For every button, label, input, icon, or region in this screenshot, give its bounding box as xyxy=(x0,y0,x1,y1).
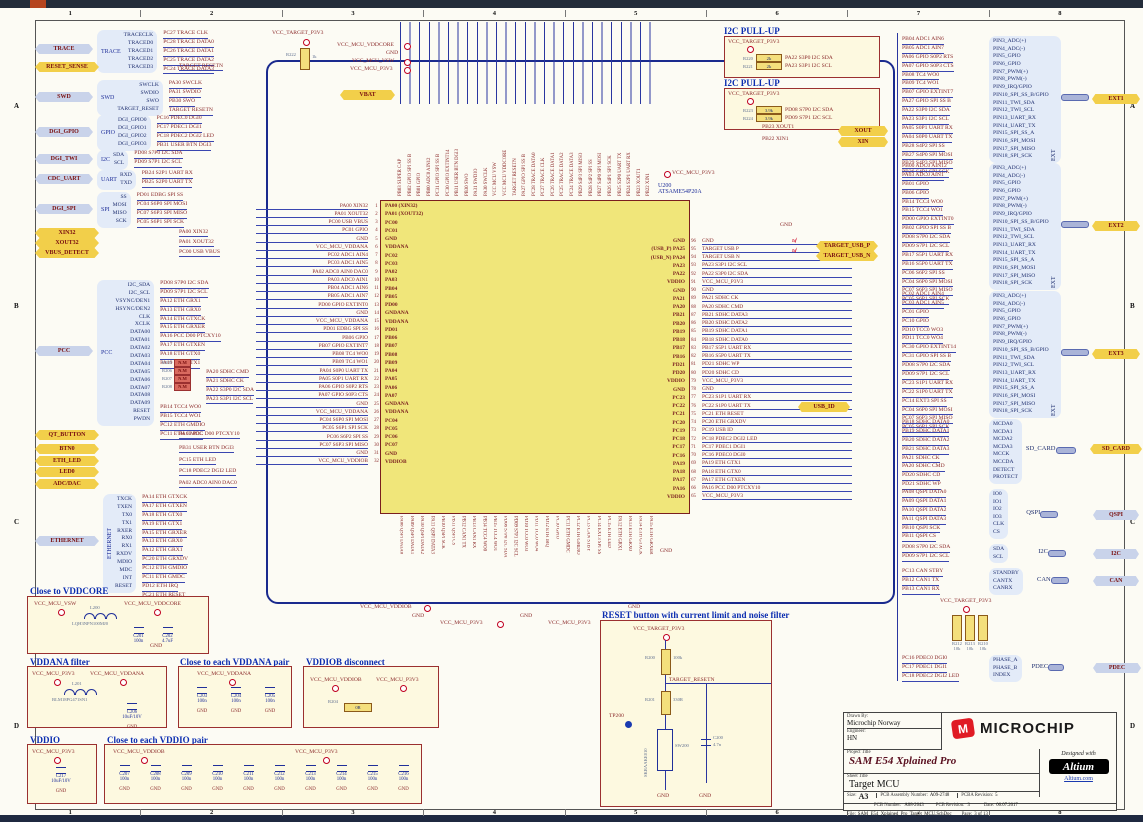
port-pin: MOSI xyxy=(113,202,127,210)
net-label: PA13 ETH GRX0 xyxy=(160,307,201,316)
mcu-pin-row: PD21 81 PD21 SDHC WP xyxy=(565,361,852,369)
pin-name: PC19 xyxy=(565,428,685,434)
net-label: PC16 PDEC0 DGI0 xyxy=(157,115,202,124)
vddana-filter-caps: C206 10uF/10V GND xyxy=(112,703,152,730)
net-label: PA19 ETH GTX1 xyxy=(702,460,852,467)
header-pin: PIN9_IRQ/GPIO xyxy=(993,211,1032,219)
net-label: PB29 S4P3 SPI MISO xyxy=(579,106,589,196)
mcu-pin-row: PB18 84 PB18 SDHC DATA0 xyxy=(565,336,852,344)
port-pin: DATA02 xyxy=(130,345,150,353)
capacitor[interactable]: C209 100n GND xyxy=(171,765,202,792)
vddio-box: VCC_MCU_P3V3 C217 10uF/10V GND xyxy=(27,744,97,804)
xin32: XIN32 PA00 XIN32 xyxy=(35,228,208,238)
net-label: PA21 SDHC CK xyxy=(902,455,940,464)
pin-name: GND xyxy=(565,238,685,244)
capacitor[interactable]: C205 100n GND xyxy=(253,687,287,714)
mcu-pin-row: VDDIO 65 VCC_MCU_P3V3 xyxy=(565,493,852,501)
capacitor-icon xyxy=(337,765,347,772)
pcba-rev-label: PCBA Revision: xyxy=(957,793,993,798)
net-label: PB02 GPIO SPI SS B xyxy=(902,225,951,234)
pin-name: PA16 xyxy=(565,486,685,492)
port-trace[interactable]: TRACE xyxy=(35,44,93,54)
port-dgi-spi[interactable]: DGI_SPI xyxy=(35,204,93,214)
net-label: PB31 USER BTN DGI3 xyxy=(179,445,234,454)
capacitor-icon xyxy=(120,765,130,772)
page-value: 3 of 13 xyxy=(974,812,988,817)
mcu-pin-row: VCC_MCU_VDDANA 15 VDDANA xyxy=(256,318,408,326)
capacitor[interactable]: C214 100n GND xyxy=(326,765,357,792)
port-i2c[interactable]: I2C xyxy=(1093,549,1139,559)
header-pin: PIN8_PWM(-) xyxy=(993,331,1027,339)
mcu-pin-row: PA05 S0P1 UART RX 22 PA05 xyxy=(256,375,397,383)
net-label: PD20 SDHC CD xyxy=(902,472,940,481)
inductor-l201[interactable] xyxy=(64,689,97,695)
port-pcc[interactable]: PCC xyxy=(35,346,93,356)
pin-number: 78 xyxy=(685,387,702,392)
port-dgi-twi[interactable]: DGI_TWI xyxy=(35,154,93,164)
capacitor[interactable]: C203 100n GND xyxy=(185,687,219,714)
resistor[interactable] xyxy=(965,615,975,641)
port-btn0[interactable]: BTN0 xyxy=(35,444,99,454)
mcu-pin-row: GND 31 GND xyxy=(256,450,397,458)
net-label: VCC_MCU_P3V3 xyxy=(32,671,75,677)
net-label: PA13 ETH GRX0 xyxy=(622,516,632,602)
block-label: CAN xyxy=(1037,576,1051,583)
port-pin: SWDIO xyxy=(141,90,159,98)
eth-led: ETH_LED PC15 ETH LED xyxy=(35,456,216,466)
pin-name: GND xyxy=(385,451,397,457)
net-label: PC20 ETH GRXDV xyxy=(702,419,852,426)
asm-number: A09-2748 xyxy=(930,793,949,798)
capacitor[interactable]: C212 100n GND xyxy=(264,765,295,792)
capacitor[interactable]: C204 100n GND xyxy=(219,687,253,714)
pin-name: PB08 xyxy=(385,352,397,358)
net-label: PC07 S6P3 SPI MISO xyxy=(256,442,368,449)
net-label: PA20 SDHC CMD xyxy=(206,369,249,378)
resistor[interactable]: 2k xyxy=(756,54,782,62)
net-label: PA18 ETH GTX0 xyxy=(702,469,852,476)
mcu-pin-row: (USB_N) PA24 94 TARGET USB N xyxy=(565,254,852,262)
net-label: PB03 SUPER CAP xyxy=(398,106,408,196)
net-label: PA07 GPIO S0P3 CTS xyxy=(902,63,954,72)
net-label: PB25 S2P0 UART TX xyxy=(618,106,628,196)
col-label: 1 xyxy=(0,809,141,816)
net-label: PB11 QSPI CS xyxy=(902,533,936,542)
capacitor-icon xyxy=(213,765,223,772)
group-label: ETHERNET xyxy=(107,528,113,559)
pin-number: 26 xyxy=(368,410,385,415)
reset-sense: RESET_SENSE TARGET RESETN xyxy=(35,62,223,72)
pin-name: VDDIO xyxy=(565,494,685,500)
qspi-block: PA08 QSPI DATA0PA09 QSPI DATA1PA10 QSPI … xyxy=(902,489,1058,542)
net-label: PA00 XIN32 xyxy=(256,203,368,210)
net-label: PA31 SWDIO xyxy=(474,106,484,196)
nm-resistor[interactable]: N.M xyxy=(174,375,191,383)
pin-number: 6 xyxy=(368,245,385,250)
pin-name: PA21 xyxy=(565,296,685,302)
port-pin: DATA08 xyxy=(130,392,150,400)
component-value: SKRAAKE010 xyxy=(643,721,648,777)
pin-number: 30 xyxy=(368,443,385,448)
port-pin: DATA06 xyxy=(130,377,150,385)
net-label: PD10 TCC0 WO3 xyxy=(902,327,943,336)
port-qspi[interactable]: QSPI xyxy=(1093,510,1139,520)
net-label: PA16 PCC D00 PTCXY10 xyxy=(179,431,240,440)
net-label-p3v3: VCC_MCU_P3V3 xyxy=(672,170,715,176)
net-label: PC10 GPIO xyxy=(902,318,929,327)
brand-name: MICROCHIP xyxy=(980,720,1075,737)
capacitor[interactable]: C206 10uF/10V GND xyxy=(112,703,152,730)
net-label: VCC_MCU_VDDANA xyxy=(90,671,144,677)
net-label: PA02 ADC0 AIN0 DAC0 xyxy=(256,269,368,276)
pin-name: PB04 xyxy=(385,286,397,292)
gnd-label: GND xyxy=(274,787,284,792)
power-pin-icon xyxy=(120,679,127,686)
pin-name: GND xyxy=(385,236,397,242)
dgi-gpio-group: DGI_GPIO GPIO DGI_GPIO0DGI_GPIO1DGI_GPIO… xyxy=(35,115,214,151)
net-label: PA18 ETH GTX0 xyxy=(142,512,182,521)
net-label: VCC_MCU_VDDANA xyxy=(197,671,251,677)
net-label: PC10 GPIO xyxy=(549,516,559,602)
block-pin: IO1 xyxy=(993,499,1002,507)
pin-name: PB16 xyxy=(565,354,685,360)
net-label: PA14 ETH GTXCK xyxy=(160,316,205,325)
pin-number: 91 xyxy=(685,280,702,285)
resistor[interactable]: 3.9k xyxy=(756,114,782,122)
net-label: PB17 S5P1 UART RX xyxy=(702,345,852,352)
pin-name: PB06 xyxy=(385,335,397,341)
capacitor[interactable]: C215 100n GND xyxy=(357,765,388,792)
pin-name: PA05 xyxy=(385,376,397,382)
net-label: PB22 XIN1 xyxy=(762,136,789,142)
component-value: 100n xyxy=(213,777,223,782)
block-label: SD_CARD xyxy=(1026,445,1056,452)
col-label: 1 xyxy=(0,10,141,17)
capacitor[interactable]: C211 100n GND xyxy=(233,765,264,792)
port-pin: DGI_GPIO0 xyxy=(118,117,147,125)
net-label: PB24 S2P1 UART RX xyxy=(627,106,637,196)
capacitor[interactable]: C207 100n GND xyxy=(109,765,140,792)
switch-sw200[interactable] xyxy=(657,729,673,771)
net-label: PB05 ADC1 AIN7 xyxy=(902,45,944,54)
pin-name: PB05 xyxy=(385,294,397,300)
capacitor[interactable]: C202 4.7uF xyxy=(153,627,182,644)
mcu-pin-row: PA19 69 PA19 ETH GTX1 xyxy=(565,460,852,468)
mcu-pin-row: PB09 TC4 WO1 20 PB09 xyxy=(256,359,397,367)
net-label: PA08 QSPI DATA0 xyxy=(902,489,946,498)
port-ext1[interactable]: EXT1 xyxy=(1092,94,1140,104)
capacitor[interactable]: C217 10uF/10V GND xyxy=(40,767,82,794)
capacitor-icon xyxy=(134,627,144,634)
connector-stub xyxy=(1061,349,1089,356)
header-label: EXT xyxy=(1051,38,1057,161)
col-label: 5 xyxy=(566,809,707,816)
gnd-label: GND xyxy=(197,709,207,714)
pin-number: 15 xyxy=(368,319,385,324)
mcu-pin-row: PA18 68 PA18 ETH GTX0 xyxy=(565,468,852,476)
net-label-vcc-target: VCC_TARGET_P3V3 xyxy=(272,30,323,36)
mcu-pin-row: PB16 82 PB16 S5P0 UART TX xyxy=(565,353,852,361)
header-pin: PIN6_GPIO xyxy=(993,61,1021,69)
component-value: 10uF/10V xyxy=(122,715,141,720)
port-reset-sense[interactable]: RESET_SENSE xyxy=(35,62,99,72)
resistor[interactable]: 2k xyxy=(756,62,782,70)
mcu-pin-row: PC05 S6P1 SPI SCK 28 PC05 xyxy=(256,425,398,433)
net-label: VCC_MCU_VDDANA xyxy=(256,244,368,251)
resistor-r201[interactable] xyxy=(661,691,671,715)
port-pin: DGI_GPIO1 xyxy=(118,125,147,133)
pin-name: PA23 xyxy=(565,263,685,269)
port-ext3[interactable]: EXT3 xyxy=(1092,349,1140,359)
net-label: PB08 TC4 WO0 xyxy=(256,351,368,358)
pin-name: PA02 xyxy=(385,269,397,275)
nm-resistor[interactable]: N.M xyxy=(174,383,191,391)
file-label: File: xyxy=(847,812,856,817)
net-label: PA10 QSPI DATA2 xyxy=(414,516,424,602)
port-pin: I2C_SCL xyxy=(129,290,150,298)
pin-number: 87 xyxy=(685,313,702,318)
resistor-r200[interactable] xyxy=(661,649,671,675)
net-label: PB19 SDHC DATA1 xyxy=(902,428,949,437)
pin-name: PC05 xyxy=(385,426,398,432)
engineer: HN xyxy=(847,734,941,742)
port-vbus-detect[interactable]: VBUS_DETECT xyxy=(35,248,99,258)
mcu-pin-row: PC02 ADC1 AIN4 7 PC02 xyxy=(256,252,398,260)
mcu-top-nets: PB03 SUPER CAPPB02 GPIO SPI SS BPB01 GPI… xyxy=(398,106,656,196)
net-label: PD00 GPIO EXTINT0 xyxy=(902,216,954,225)
pin-name: PB18 xyxy=(565,337,685,343)
net-label: PA23 S3P1 I2C SCL xyxy=(702,262,852,269)
pin-number: 73 xyxy=(685,428,702,433)
pin-name: PC18 xyxy=(565,436,685,442)
net-label: PD09 S7P1 I2C SCL xyxy=(902,371,949,380)
pin-number: 23 xyxy=(368,385,385,390)
net-label: PC11 ETH GMDC xyxy=(559,516,569,602)
led0: LED0 PC18 PDEC2 DGI2 LED xyxy=(35,467,236,477)
capacitor[interactable]: C201 100n xyxy=(124,627,153,644)
net-label: PB12 CAN1 TX xyxy=(902,577,939,586)
net-label: PB22 XIN1 xyxy=(646,106,656,196)
component-value: 100n xyxy=(306,777,316,782)
mcu-pin-row: PD00 GPIO EXTINT0 13 PD00 xyxy=(256,301,398,309)
microchip-logo: M MICROCHIP xyxy=(952,719,1075,738)
net-label: PA15 ETH GRXER xyxy=(642,516,652,602)
port-pin: DGI_GPIO3 xyxy=(118,141,147,149)
header-pin: PIN12_TWI_SCL xyxy=(993,234,1034,242)
block-pin: MCDA2 xyxy=(993,436,1013,444)
port-pin: TRACECLK xyxy=(124,32,154,40)
port-pin: RXD xyxy=(120,172,132,180)
net-label: PB00 ADC0 AIN12 xyxy=(902,163,947,172)
pin-number: 2 xyxy=(368,212,385,217)
nm-resistor[interactable]: N.M xyxy=(174,367,191,375)
port-vbat[interactable]: VBAT xyxy=(340,90,395,100)
port-xin[interactable]: XIN xyxy=(838,137,888,147)
port-ethernet[interactable]: ETHERNET xyxy=(35,536,99,546)
net-label: PC04 S6P0 SPI MOSI xyxy=(902,279,953,288)
file-name: SAM_E54_Xplained_Pro_Target_MCU.SchDoc xyxy=(858,812,952,817)
mcu-pin-row: PA23 93 PA23 S3P1 I2C SCL xyxy=(565,262,852,270)
capacitor[interactable]: C208 100n GND xyxy=(140,765,171,792)
port-eth-led[interactable]: ETH_LED xyxy=(35,456,99,466)
pcb-number-label: PCB Number: xyxy=(874,803,901,808)
pin-name: PC03 xyxy=(385,261,398,267)
header-pin: PIN3_ADC(+) xyxy=(993,293,1026,301)
net-label: GND xyxy=(256,310,368,317)
component-value: LQH3NPN100MJ0 xyxy=(72,621,108,626)
mcu-pin-row: PA06 GPIO S0P2 RTS 23 PA06 xyxy=(256,384,397,392)
pcb-number: A08-2643 xyxy=(904,803,923,808)
pin-number: 4 xyxy=(368,228,385,233)
pin-name: PC06 xyxy=(385,434,398,440)
pin-name: PB17 xyxy=(565,345,685,351)
net-label: VCC_MCU_VDDIOB xyxy=(113,749,165,755)
component-value: 100n xyxy=(182,777,192,782)
pin-number: 7 xyxy=(368,253,385,258)
header-pin: PIN5_GPIO xyxy=(993,180,1021,188)
mcu-pin-row: PA21 89 PA21 SDHC CK xyxy=(565,295,852,303)
resistor-r204[interactable]: 0R xyxy=(344,703,372,712)
net-label: PB19 SDHC DATA1 xyxy=(702,328,852,335)
component-value: 10k xyxy=(967,646,974,651)
port-pin: CLK xyxy=(139,314,150,322)
pin-name: PC04 xyxy=(385,418,398,424)
nm-resistor[interactable]: N.M xyxy=(174,359,191,367)
port-pin: DATA01 xyxy=(130,337,150,345)
inductor-l200[interactable] xyxy=(84,613,117,619)
mcu-pin-row: GND 25 GNDANA xyxy=(256,400,409,408)
net-label: PC15 ETH LED xyxy=(179,457,216,466)
component-value: 4.7n xyxy=(713,742,721,747)
resistor-r222[interactable] xyxy=(300,48,310,70)
port-can[interactable]: CAN xyxy=(1093,576,1139,586)
port-target-usb-n[interactable]: TARGET_USB_N xyxy=(816,251,878,261)
component-value: 4.7uF xyxy=(162,639,173,644)
port-target-usb-p[interactable]: TARGET_USB_P xyxy=(816,241,878,251)
block-pin: CLK xyxy=(993,521,1004,529)
port-xout32[interactable]: XOUT32 xyxy=(35,238,99,248)
header-pin: PIN12_TWI_SCL xyxy=(993,362,1034,370)
net-label: PC18 PDEC2 DGI2 LED xyxy=(157,133,214,142)
port-swd[interactable]: SWD xyxy=(35,92,93,102)
port-dgi-gpio[interactable]: DGI_GPIO xyxy=(35,127,93,137)
pin-number: 72 xyxy=(685,437,702,442)
port-ext2[interactable]: EXT2 xyxy=(1092,221,1140,231)
port-xout[interactable]: XOUT xyxy=(838,126,888,136)
header-pin: PIN17_SPI_MISO xyxy=(993,401,1035,409)
port-usb-id[interactable]: USB_ID xyxy=(798,402,850,412)
capacitor[interactable]: C216 100n GND xyxy=(388,765,419,792)
block-title-i2c-pullup-1: I2C PULL-UP xyxy=(724,26,780,36)
net-label: TARGET RESETN xyxy=(179,63,223,72)
port-cdc-uart[interactable]: CDC_UART xyxy=(35,174,93,184)
capacitor[interactable]: C210 100n GND xyxy=(202,765,233,792)
power-pin-icon xyxy=(141,757,148,764)
block-title-reset: RESET button with current limit and nois… xyxy=(602,610,789,620)
port-sd-card[interactable]: SD_CARD xyxy=(1090,444,1142,454)
net-label: VCC_MCU_VDDANA xyxy=(256,318,368,325)
capacitor-icon xyxy=(151,765,161,772)
header-pin: PIN11_TWI_SDA xyxy=(993,355,1035,363)
port-adc-dac[interactable]: ADC/DAC xyxy=(35,479,99,489)
power-pin-icon xyxy=(664,171,671,178)
pin-name: PA00 (XIN32) xyxy=(385,203,417,209)
port-pin: VSYNC/DEN1 xyxy=(115,298,150,306)
capacitor[interactable]: C213 100n GND xyxy=(295,765,326,792)
net-label: PA02 ADC0 AIN0 DAC0 xyxy=(179,480,237,489)
mcu-pin-row: PB07 GPIO EXTINT7 18 PB07 xyxy=(256,342,397,350)
resistor[interactable]: 3.9k xyxy=(756,106,782,114)
gnd-label: GND xyxy=(231,709,241,714)
net-label: PC00 USB VBUS xyxy=(256,219,368,226)
net-label: VCC_TARGET_P3V3 xyxy=(940,598,991,604)
net-label: PC05 S6P1 SPI SCK xyxy=(256,425,368,432)
net-label: PA27 GPIO SPI SS B xyxy=(902,98,951,107)
size-value: A3 xyxy=(859,792,869,801)
mcu-pin-row: PB17 83 PB17 S5P1 UART RX xyxy=(565,344,852,352)
port-qt-button[interactable]: QT_BUTTON xyxy=(35,430,99,440)
net-label-vddcore: VCC_MCU_VDDCORE xyxy=(337,42,394,48)
resistor[interactable] xyxy=(952,615,962,641)
net-label: PC18 PDEC2 DGI2 LED xyxy=(179,468,236,477)
net-label: PA14 ETH GTXCK xyxy=(142,494,187,503)
net-label: PD08 S7P0 I2C SDA xyxy=(134,150,182,159)
header-pin: PIN3_ADC(+) xyxy=(993,38,1026,46)
testpoint-tp200[interactable] xyxy=(625,721,632,728)
pin-name: VDDANA xyxy=(385,244,408,250)
net-label: PC20 ETH GRXDV xyxy=(142,556,188,565)
capacitor-icon xyxy=(244,765,254,772)
pullup-rows: R220 2k PA22 S3P0 I2C SDA R221 2k PA23 S… xyxy=(743,54,879,70)
net-label: PA23 S3P1 I2C SCL xyxy=(785,63,832,69)
net-label: PD01 EDBG SPI SS xyxy=(137,192,183,201)
capacitor-icon xyxy=(399,765,409,772)
altium-link[interactable]: Altium.com xyxy=(1040,776,1117,782)
net-label: PC04 S6P0 SPI MOSI xyxy=(902,407,953,416)
net-label: PB17 S5P1 UART RX xyxy=(902,252,953,261)
row-label: B xyxy=(1130,302,1135,310)
diff-pair-icon: ≉ xyxy=(792,238,796,244)
net-label: PA05 S0P1 UART RX xyxy=(902,125,953,134)
net-label: PA10 QSPI DATA2 xyxy=(902,507,946,516)
component-value: 100n xyxy=(368,777,378,782)
net-label: PC26 TRACE DATA1 xyxy=(163,48,214,57)
port-pin: DATA09 xyxy=(130,400,150,408)
port-xin32[interactable]: XIN32 xyxy=(35,228,99,238)
net-label: PC28 TRACE DATA0 xyxy=(532,106,542,196)
pin-name: VDDIOB xyxy=(385,459,407,465)
resistor[interactable] xyxy=(978,615,988,641)
block-pin: PROTECT xyxy=(993,474,1018,482)
capacitor-icon xyxy=(231,687,241,694)
pin-name: PC21 xyxy=(565,411,685,417)
port-pdec[interactable]: PDEC xyxy=(1093,663,1141,673)
header-pin: PIN13_UART_RX xyxy=(993,115,1036,123)
header-pin: PIN10_SPI_SS_B/GPIO xyxy=(993,219,1049,227)
net-label: PC01 GPIO xyxy=(902,309,929,318)
net-label: PA04 S0P0 UART TX xyxy=(256,368,368,375)
port-pin: XCLK xyxy=(135,321,150,329)
pin-number: 67 xyxy=(685,478,702,483)
gnd-label: GND xyxy=(699,793,711,799)
header-pin: PIN16_SPI_MOSI xyxy=(993,393,1035,401)
vddcore-box: VCC_MCU_VSW L200 LQH3NPN100MJ0 VCC_MCU_V… xyxy=(27,596,209,654)
pin-name: PC23 xyxy=(565,395,685,401)
vbus-detect: VBUS_DETECT PC00 USB VBUS xyxy=(35,248,220,258)
net-label: PA11 QSPI DATA3 xyxy=(902,516,946,525)
port-led0[interactable]: LED0 xyxy=(35,467,99,477)
port-pin: SWO xyxy=(146,98,158,106)
